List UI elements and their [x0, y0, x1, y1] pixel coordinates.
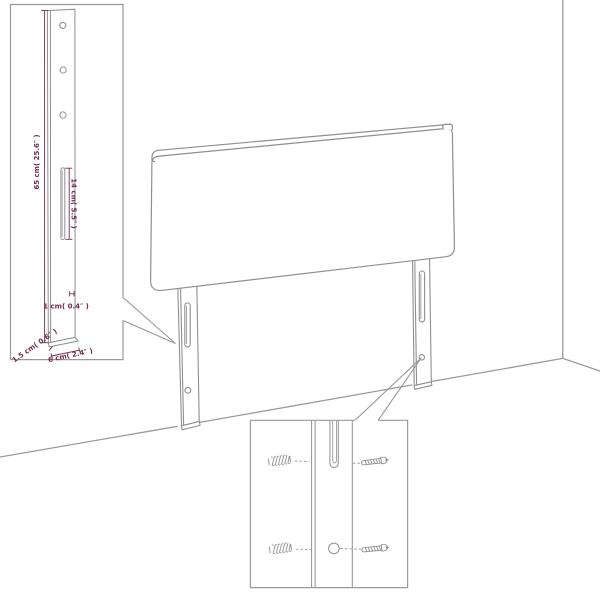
- left-leg-hole: [185, 387, 191, 393]
- inset-mounting-bg: [250, 420, 407, 587]
- dim-height-label: 65 cm( 25.6″ ): [33, 134, 41, 189]
- diagram-canvas: 65 cm( 25.6″ ) 14 cm( 5.5″ ) 1 cm( 0.4″ …: [0, 0, 600, 600]
- floor-line-side: [563, 358, 600, 371]
- dim-slot-label: 14 cm( 5.5″ ): [70, 178, 78, 228]
- left-leg-slot: [185, 303, 190, 347]
- floor-line-left: [0, 426, 178, 457]
- callout-left-line-bottom: [123, 321, 176, 344]
- dim-hook-label: 1 cm( 0.4″ ): [43, 303, 89, 311]
- headboard-front-face: [151, 128, 455, 290]
- floor-line-right: [432, 358, 563, 381]
- callout-left-line-top: [123, 298, 176, 344]
- right-leg-slot: [419, 271, 424, 322]
- headboard-diagram: 65 cm( 25.6″ ) 14 cm( 5.5″ ) 1 cm( 0.4″ …: [0, 0, 600, 600]
- callout-left: [123, 298, 176, 344]
- inset-leg-hole: [329, 543, 340, 554]
- post-slot: [61, 168, 65, 240]
- inset-mounting-detail: [250, 420, 407, 587]
- right-leg: [412, 249, 432, 390]
- left-leg: [178, 284, 200, 430]
- callout-right-line-left: [355, 358, 421, 421]
- headboard-panel: [151, 124, 455, 290]
- inset-post-detail: 65 cm( 25.6″ ) 14 cm( 5.5″ ) 1 cm( 0.4″ …: [11, 5, 124, 365]
- callout-right: [355, 358, 421, 421]
